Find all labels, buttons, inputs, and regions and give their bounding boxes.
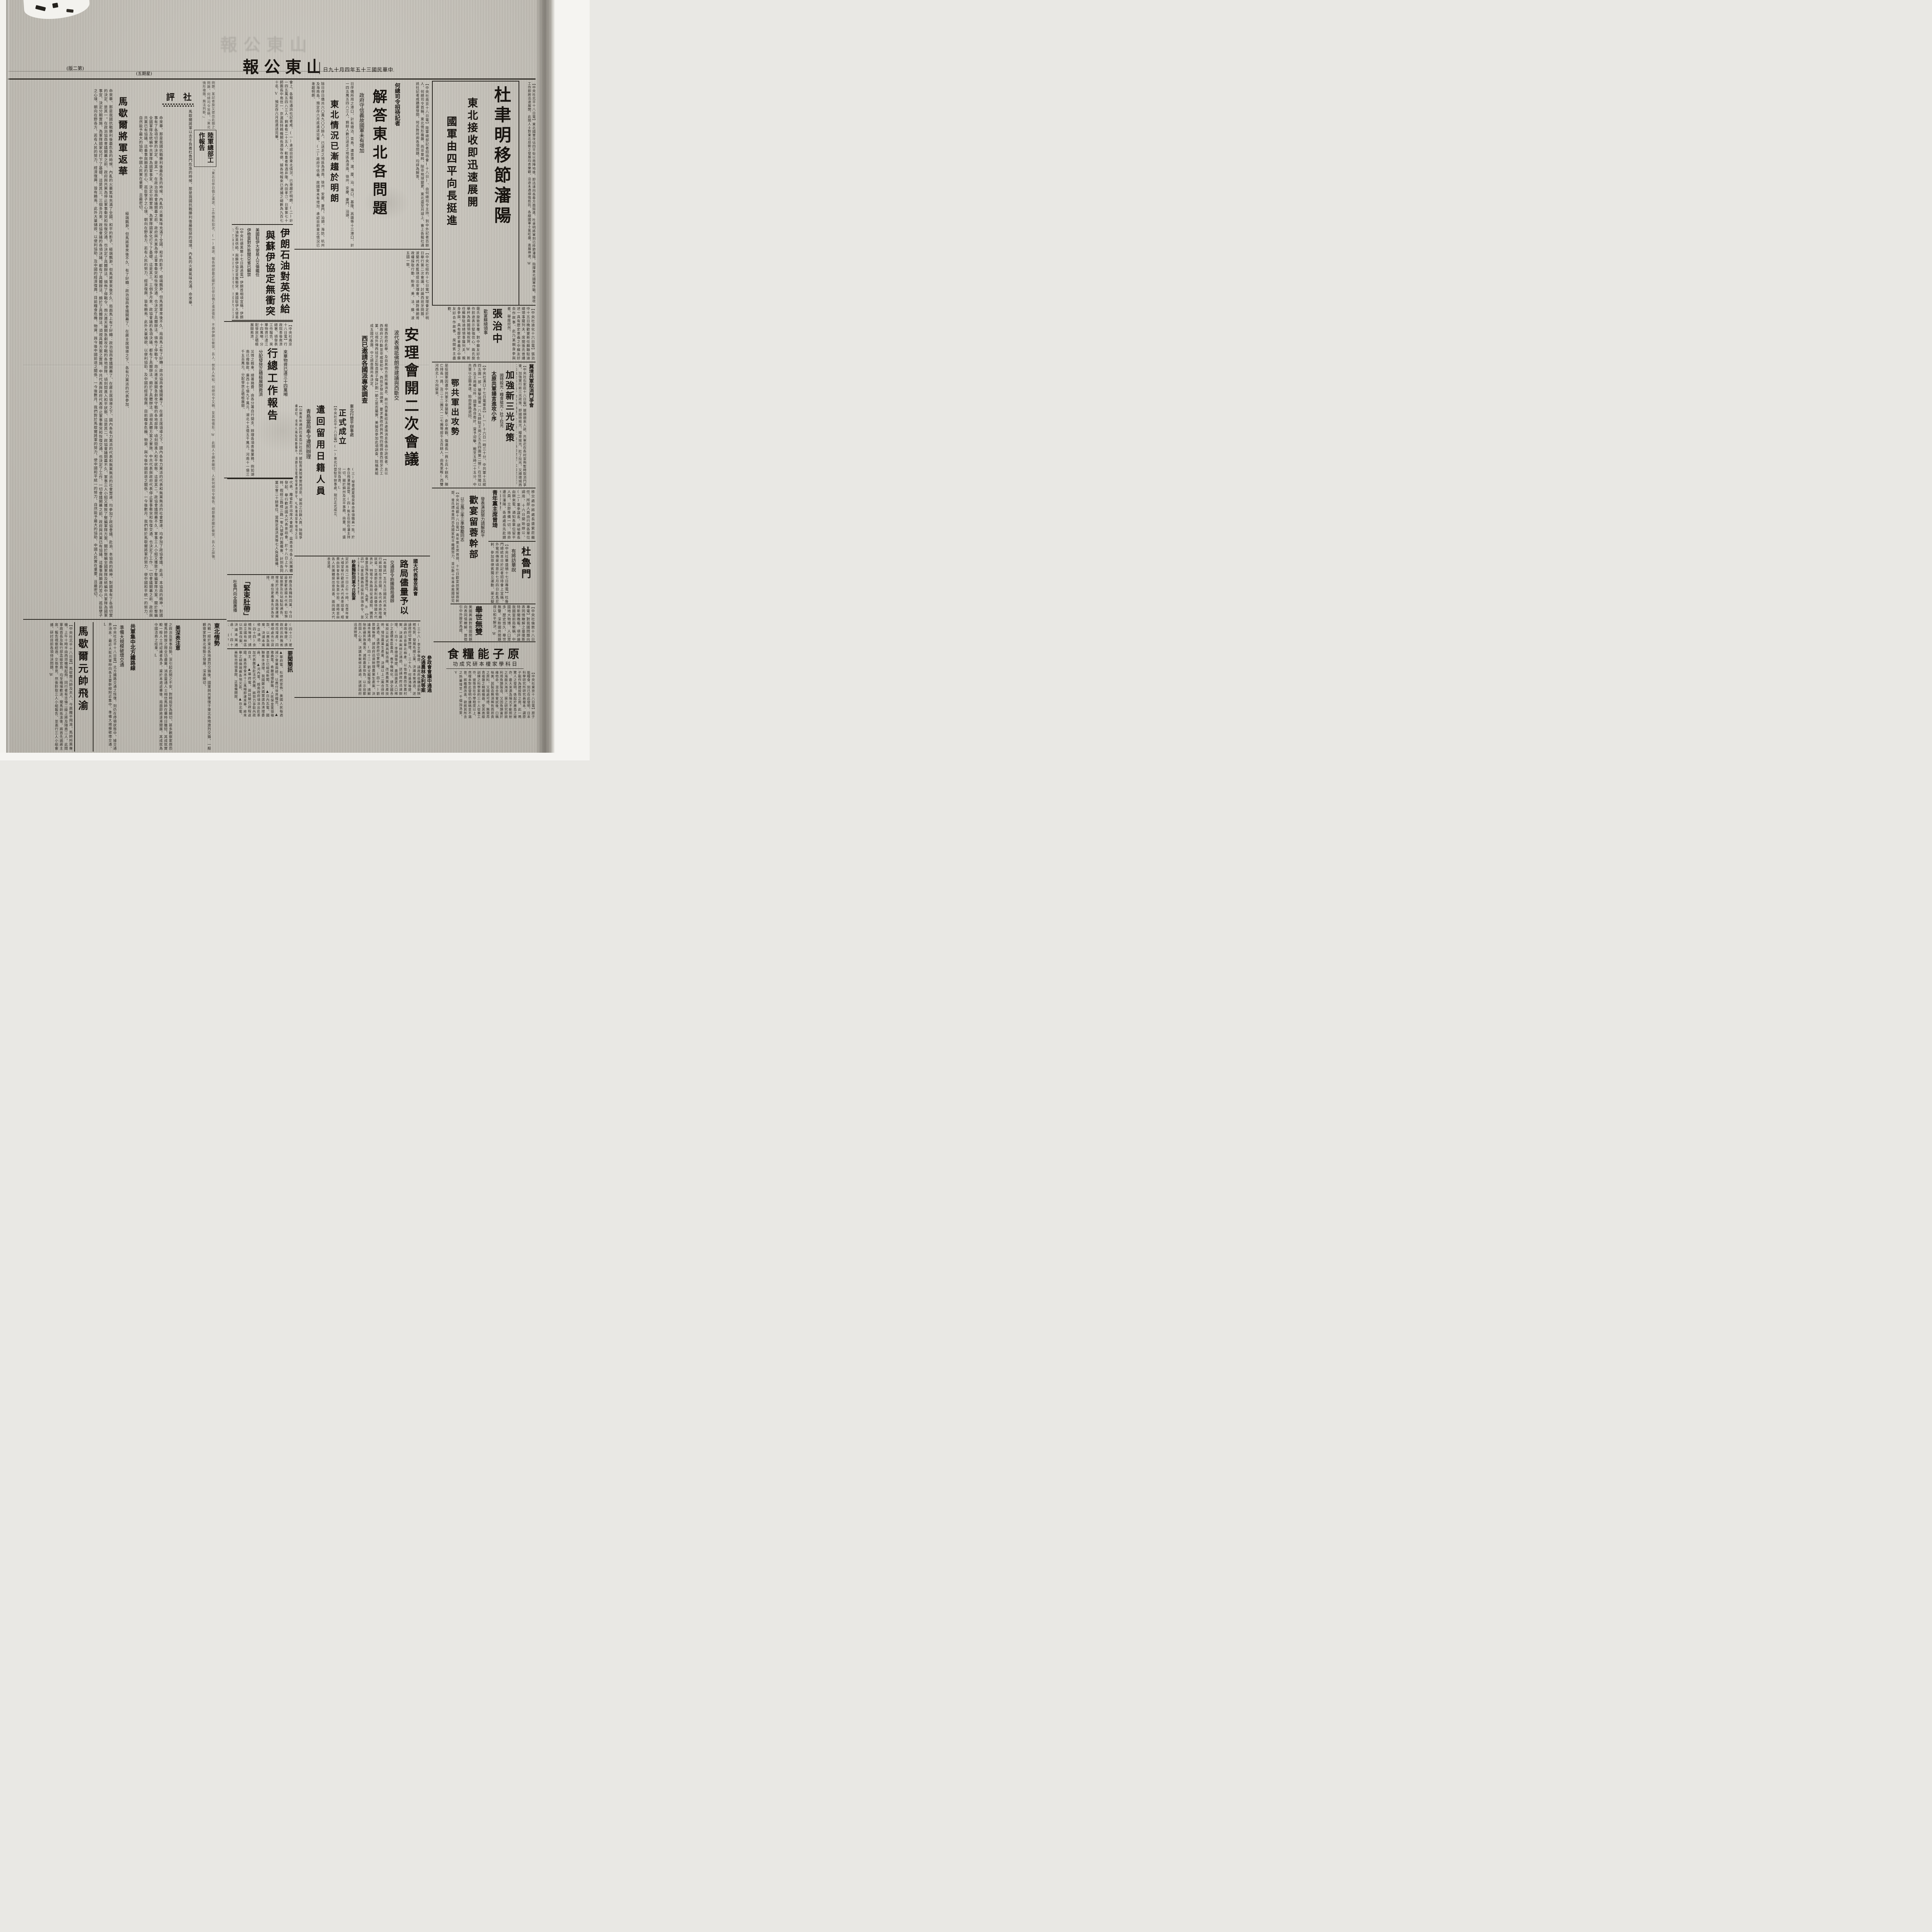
luju-kicker: 國大代表晉京與會 <box>411 559 419 617</box>
atomic-food-headline: 食糧能子原 <box>447 645 525 662</box>
qianhui-story: 【山東青年通訊社青島分社訊】據駐青美陸軍當局消息、留用之日籍人員、除戰爭嫌疑犯、… <box>295 404 302 539</box>
rule <box>432 362 536 362</box>
editorial-label: 評社 <box>166 90 193 103</box>
army-hq-report-header: 陸軍總部工作報告 <box>196 132 214 164</box>
xingying-story-2: (三)祕書處夏祖良奉命率領職員一批、於本日飛瀋陽設營、(四)熊主任刻在瀋主持一切… <box>337 468 355 539</box>
editorial-body: 命來華、那是我國抗戰勝利後最危急的時候、內亂的火藥氣味充滿了全國、和平的影子、極… <box>25 89 113 617</box>
he-subhead-1: 政府守信義故國軍未有增加 <box>355 93 365 226</box>
lead-headline: 杜聿明移節瀋陽 <box>490 86 513 299</box>
gongjun-story: 【中央社北平十八日電】北方鐵路交通之恢復、刻仍在停頓狀態中、據交通界消息、最近大… <box>95 623 117 750</box>
editorial-column-below-title: 極端飄渺。但馬將軍來後不久、有了好轉：政治協商會議開幕了、在蔣主席領導之下、各有… <box>115 212 129 617</box>
yaowen-headline: 要聞簡訊 <box>284 651 294 682</box>
he-story-overflow: 會上、各報社通訊社記者咸、(一)承認目前東北情況、已漸趨於明朗、(二)計一四五萬… <box>232 80 293 223</box>
xingzong-headline: 行總工作報告 <box>265 348 279 446</box>
rule <box>294 556 430 556</box>
truman-subhead: 有將訪華說 <box>510 549 517 592</box>
atomic-food-story: 【中央社東京十八日電】原子能糧食、刻已在此發明、日本科學研究所研究員榎本、謂原子… <box>435 671 535 719</box>
canzheng-headline-line2: 交通農林水利等案 <box>420 655 427 703</box>
anli-headline: 安理會開二次會議 <box>401 327 421 475</box>
rule <box>232 320 293 321</box>
rule <box>227 574 293 575</box>
rule <box>488 541 536 542</box>
sha-headline: 紗廠麵粉同業今日設宴 <box>350 560 357 618</box>
lead-subhead-2: 國軍由四平向長挺進 <box>442 116 458 301</box>
masthead-title: 報公東山 <box>243 54 320 78</box>
right-margin-white <box>555 0 590 760</box>
rule <box>434 641 536 642</box>
meishen-story: 之政治及軍事局勢、深引起此間之不安、對時局至為關切、甚多觀察家感恐懼馬帥斡旋之際… <box>139 623 172 750</box>
xingzong-story: 災情之輕重、總署務費、由各分署自行開支、辦理各項善後業務、例如湖南已撥賑款、廣西… <box>225 350 254 476</box>
rule <box>224 321 293 322</box>
canzheng-headline-line1: 參政會會議中通過 <box>427 655 433 703</box>
he-kicker: 何總司令招待記者 <box>392 83 401 166</box>
anli-story-top: 【中央社紐約十七日電】安理會定於明日舉行第二次會議、討論西班牙問題、波蘭代表藍琪… <box>359 251 429 320</box>
jijing-story: 【中央社石家莊十八日電】據順德來人談、共軍近在各村宣佈暫時取消鬥爭會、加強實行新… <box>516 364 526 487</box>
jsdd-headline: 「緊束肚帶」 <box>240 578 251 619</box>
iran-subhead-2: 伊檢查對外新聞亞省已解禁 <box>245 228 252 319</box>
rule <box>227 478 293 479</box>
jijing-headline-2: 太原共軍揚言進攻小序 <box>489 371 497 472</box>
page-number-label: (版二第) <box>66 65 97 71</box>
zhang-subhead: 歡宴蘇總領事 <box>481 309 488 359</box>
anli-story-a: 根據西政府此舉、及自其他方面所獲消息、將以西軍集結法邊境消息係過分誇張者、且以西… <box>370 324 388 475</box>
chahua-story-upper: 代表、離省赴京出席大會期近、茲悉本市各人民團體發起、舉行歡送國大代表茶話會、於十… <box>227 481 293 573</box>
zhang-story-right: 【中央社迪化十六日電】張治中十五日晚歡宴新任蘇聯駐迪總領事薩列夫、席間張氏曾講述… <box>505 307 535 360</box>
luju-story: 【本報訊】五月五日國民代表大會、行將如期在京召開、各代表亦將陸續就道、交通部近為… <box>358 557 386 619</box>
xingying-story-1: 【中央社北平十八日電】(一)東北行營駐平辦事處、現已正式成立、 <box>332 404 337 539</box>
zhang-headline: 張治中 <box>490 308 504 359</box>
rule <box>232 224 293 225</box>
zhang-story-left: 薩氏旋致答覆、對中蘇友好合作前途表示堅強信心、兩氏旋舉杯為兩國領袖祝賀、W 新任… <box>433 307 480 360</box>
gongjun-headline: 共軍集中北方鐵路線 <box>128 624 136 716</box>
rule <box>23 619 226 620</box>
iran-headline-1: 伊朗石油對英供給 <box>277 228 291 318</box>
header-thin-rule <box>8 71 394 71</box>
he-story-right: 【中央社南京十八日電】陸軍總部記者招待會(十八日)、由何總司令主持、到中外記者百… <box>403 82 429 247</box>
editorial-title: 馬歇爾將軍返華 <box>114 97 129 209</box>
anli-subhead-1: 波代表痛詆佛朗哥建議與西斷交 <box>389 330 400 474</box>
rule <box>227 621 420 621</box>
he-subhead-2: 東北情況已漸趨於明朗 <box>326 100 340 229</box>
he-story-mid: 日俘僑所用之港口、計有塘沽、青島、連雲港、滬、廈、汕、海口、基隆、高雄等十三港口… <box>342 82 354 247</box>
brief-item: ▲華府電、杜總統宣佈、美國人民每週減少食量兩磅、以應付世界糧荒、 <box>274 651 283 717</box>
divider <box>74 622 75 752</box>
egong-story-right: 【中央社漢口十七日電軍息】(一)十六日一時三十分、中共軍十五縱四五團一部、襲擊國… <box>462 364 486 486</box>
luju-headline: 路局儘量予以便利 <box>396 560 410 620</box>
army-hq-strip-bottom: 「東北日俘日僑之遣送、工作情形如次、(一)遣送、報告總部最近關於日俘日僑之遣送情… <box>196 168 215 617</box>
luju-subhead: 交通部令飭鐵路局遵辦 <box>388 560 395 619</box>
dongbei-section-header: 東北情勢 <box>212 623 221 655</box>
rule <box>432 488 536 488</box>
jijing-subhead: 國特殺光・糧食搶光・壯丁拉光 <box>498 373 504 464</box>
jsdd-subhead: 杜魯門向全國廣播 <box>231 580 238 618</box>
egong-story-left: 是役國軍因遭中共軍不意襲擊、倉卒應戰、傷連長一員士兵十餘名、陣亡排長一員、及二十… <box>433 364 448 486</box>
editorial-body-gap-col: 命來華、那是我國抗戰勝利後最危急的時候、內亂的火藥氣味充滿了全國、和平的影子、極… <box>131 116 163 617</box>
jijing-headline: 加強新三光政策 <box>505 370 515 458</box>
rule <box>432 305 536 306</box>
lead-subhead-1: 東北接收即迅速展開 <box>463 97 479 298</box>
xingzong-sub-right: 來華物資已達三十四萬噸 <box>281 350 288 444</box>
qingnian-headline: 青年黨主席曾琦 <box>489 490 498 539</box>
rule <box>451 604 536 604</box>
truman-headline: 杜魯門 <box>519 546 532 580</box>
rule <box>294 249 430 250</box>
rule <box>294 697 420 698</box>
newspaper-scan-page: 報公東山 (版二第) (五期星) 報公東山 日九十月四年五十三國民華中 杜聿明移… <box>0 0 590 760</box>
editorial-column-under-label: 馬歇爾將軍以去冬負着杜魯門危急的時候、那是我國抗戰勝利後最險惡的環境、內亂的火藥… <box>165 110 192 617</box>
proposals-main: (三十八)李芝亭等提、請政府收購過剩陝棉毛質、發展毛織工業、決議本案通過、送請政… <box>294 623 420 696</box>
date-line: 日九十月四年五十三國民華中 <box>323 66 398 73</box>
divider <box>93 622 94 752</box>
marshall-story: 【中央社北平十八日電】馬歇爾元帥及夫人、今晨離平飛渝、馬帥所乘專機、上午十時半由… <box>25 623 73 750</box>
chahua-story: 定於本月二十日上午十時、在青年會大禮堂舉行歡送國大代表茶話會、經費由到會各單位負… <box>296 557 349 619</box>
rule <box>227 648 294 649</box>
marshall-headline: 馬歇爾元帥飛渝 <box>76 626 90 734</box>
atomic-food-subhead: 功成究研本榎家學科日 <box>453 660 520 667</box>
ghost-masthead-bleedthrough: 報公東山 <box>220 31 317 56</box>
qianhui-subhead: 青島當局奉令遵照辦理 <box>304 409 311 539</box>
huanyan-headline: 歡宴留蓉幹部 <box>467 495 479 596</box>
yaowen-briefs: ▲華府電、杜總統宣佈、美國人民每週減少食量兩磅、以應付世界糧荒、 ▲雅典電、希臘… <box>228 651 283 717</box>
anli-subhead-2: 西已邀請各國派專家調查 <box>359 335 369 466</box>
he-story-left: 除日俘日僑共六〇萬九〇〇餘人、已送走之地區為濟南、徐州、安慶、廈門、汕頭、海防、… <box>296 82 325 247</box>
meishen-header: 美深表注意 <box>173 625 181 663</box>
jijing-section-header: 冀境共軍取消鬥爭會 <box>527 364 535 447</box>
huanyan-story: 【中央社成都十八日電】青年黨主席曾琦、十七日歡宴該黨留蓉幹部、曾氏謂本黨同志為國… <box>451 491 459 603</box>
jushi-story-left: 美國輿論對我國問題向表同情瞭解、曾徵引中外歷史為證、 <box>451 605 472 641</box>
huanyan-subhead-left: 以三風三率三準勉勵同志 <box>460 497 465 597</box>
lead-story-columns: 【中央社北平十八日電】東北國軍攻佔四平街以南陣地後、即迅速向長春方面挺進、杜聿明… <box>520 82 536 303</box>
army-hq-strip-top: 問題、某記者旋又提出此類之問題、何總司令答稱、「東北情形複雜、無法判斷、」 <box>196 81 215 129</box>
xingzong-story-top: 【中央社南京十八日電】行政院善後救濟總署、頃發表工作報告、來華物資已達三十四萬噸… <box>225 323 292 346</box>
bottom-margin-white <box>0 753 590 760</box>
jsdd-story-right: 紗廠及各麵粉同業、今日設宴歡送國大代表、如預留座票及在站黏貼通告、俾易於洽悉、各… <box>253 576 292 618</box>
qingnian-story: 移交處中將處長盛紫莊繼任、所部人員由行營各單位調用、十六日開始辦公、(二)董參謀… <box>500 490 535 539</box>
rule <box>446 668 524 669</box>
header-main-rule <box>8 78 536 80</box>
xingzong-sub-left: 分配發放正積極展開救濟 <box>256 350 264 446</box>
gongjun-subhead: 準備大規模破壞交通 <box>118 625 125 715</box>
jushi-headline: 舉世無雙 <box>474 606 484 641</box>
jushi-story-right: 【中央社倫敦十八日專電】對我國問題向表同情瞭解之曼徹斯特新聞晚報、頃評論我國當前… <box>485 605 535 641</box>
iran-story: 【中央社德黑蘭十七日路透電】伊朗首相頃宣稱、伊朗石油對英供給、與蘇伊協定並無衝突… <box>233 226 243 319</box>
egong-headline: 鄂共軍出攻勢 <box>449 379 461 452</box>
he-headline: 解答東北各問題 <box>367 89 389 241</box>
truman-story: 【中央社華盛頓十七日專電】杜魯門總統本日於記者招待會上宣稱、外電所傳渠頃思於七月… <box>490 543 509 604</box>
proposals-left: (四十三)翟倉陸等提、請政府迅飭豫省棉花增產、四鄉總處充分貸款、以應急需案、決議… <box>228 623 292 647</box>
iran-subhead-1: 美國駐伊大使易人艾倫繼任 <box>253 228 260 319</box>
qianhui-headline: 遣回留用日籍人員 <box>313 405 326 537</box>
huanyan-subhead-right: 發表演說努力調解和平 <box>480 497 486 594</box>
xingying-headline: 正式成立 <box>337 409 348 464</box>
iran-headline-2: 與蘇伊協定無衝突 <box>262 230 277 320</box>
dongbei-story: 內戰一經於東北各地激烈交鋒後、國軍與共軍復于東北各地激烈交鋒、一般觀察家對東北情… <box>196 623 211 750</box>
